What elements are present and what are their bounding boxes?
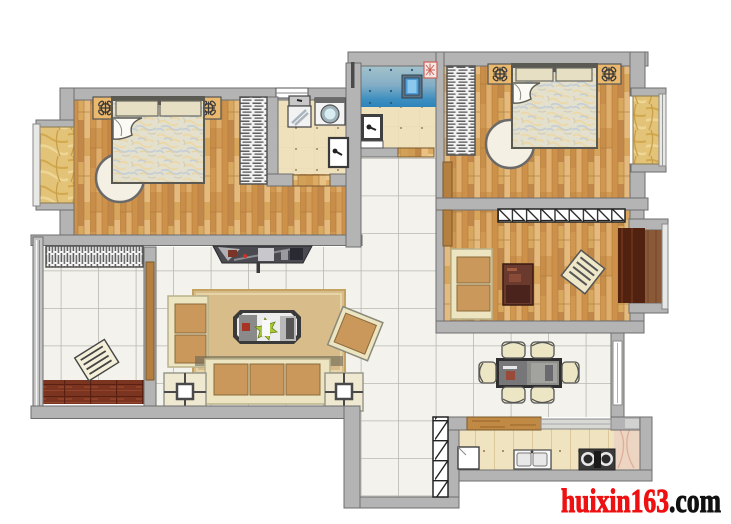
svg-text:huixin163: huixin163 <box>561 483 669 520</box>
svg-text:.com: .com <box>669 483 721 520</box>
